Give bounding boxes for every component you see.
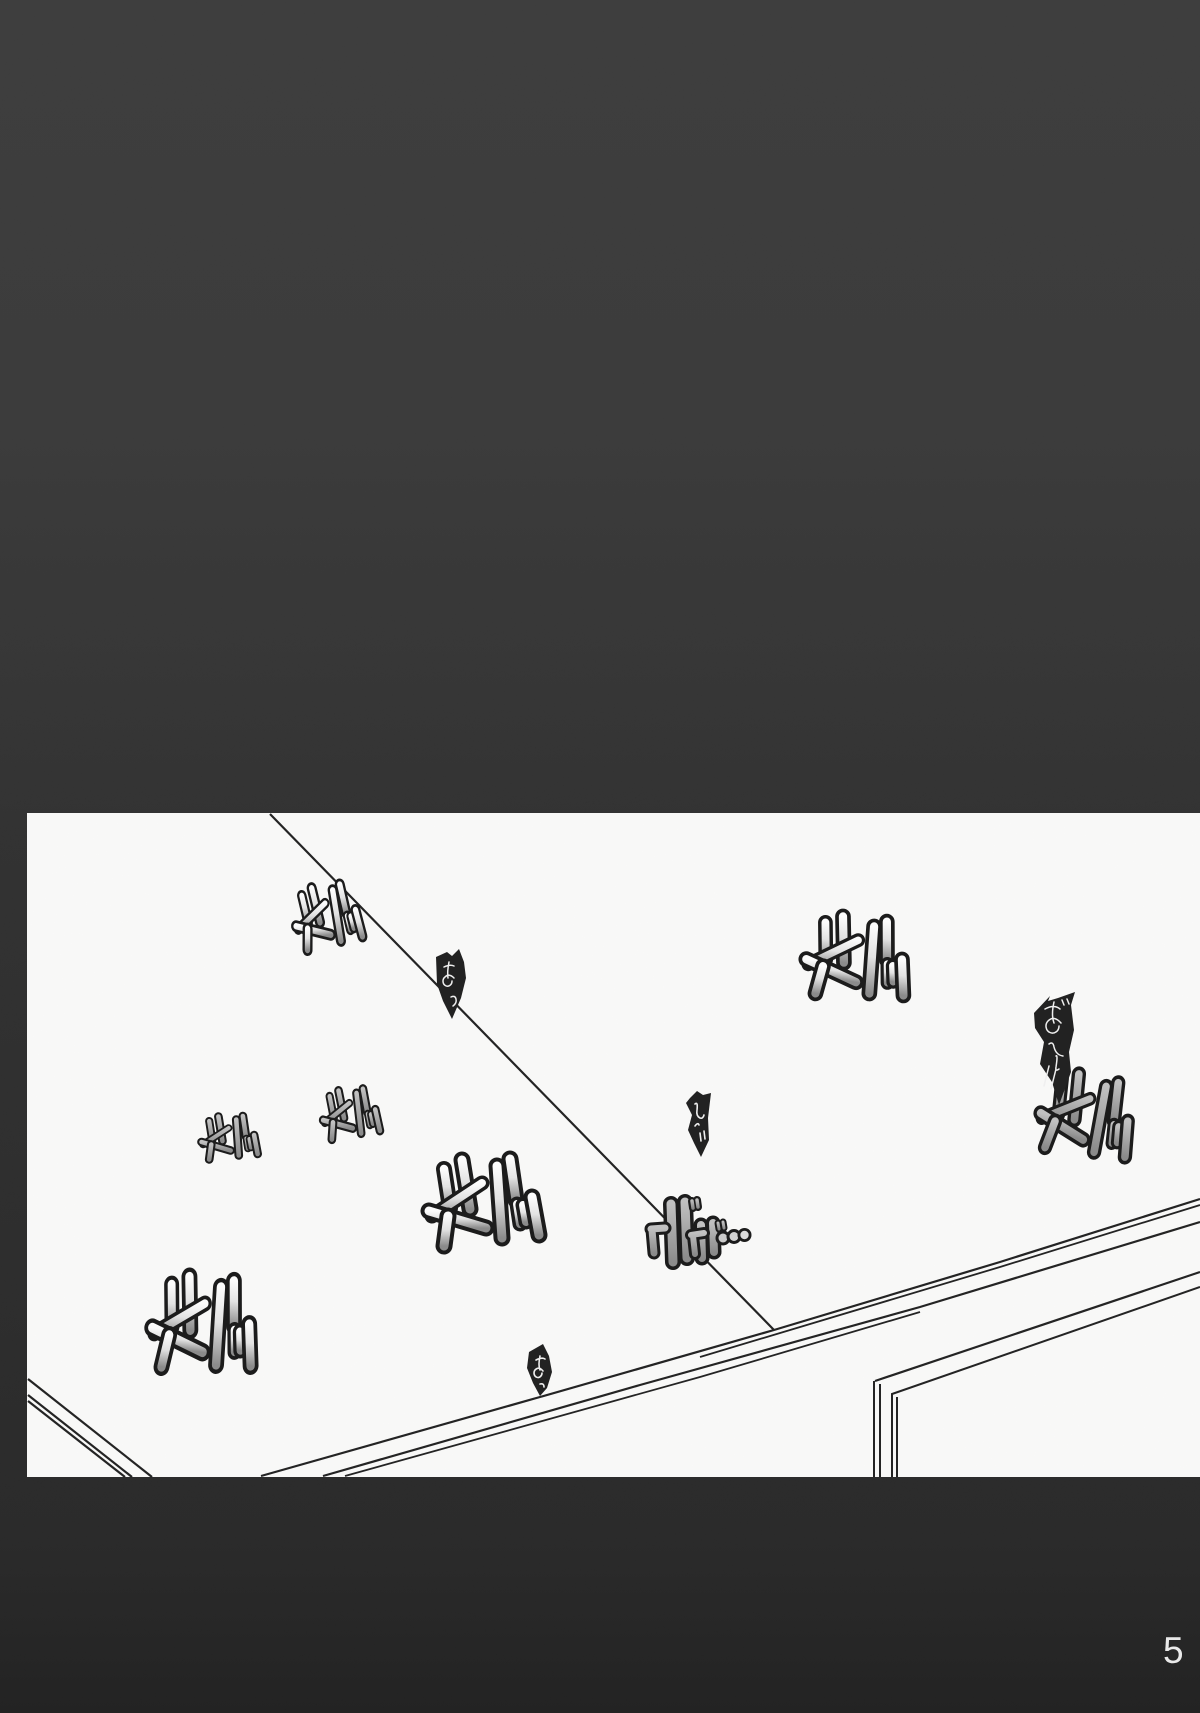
svg-text:5: 5 [1163,1630,1184,1671]
